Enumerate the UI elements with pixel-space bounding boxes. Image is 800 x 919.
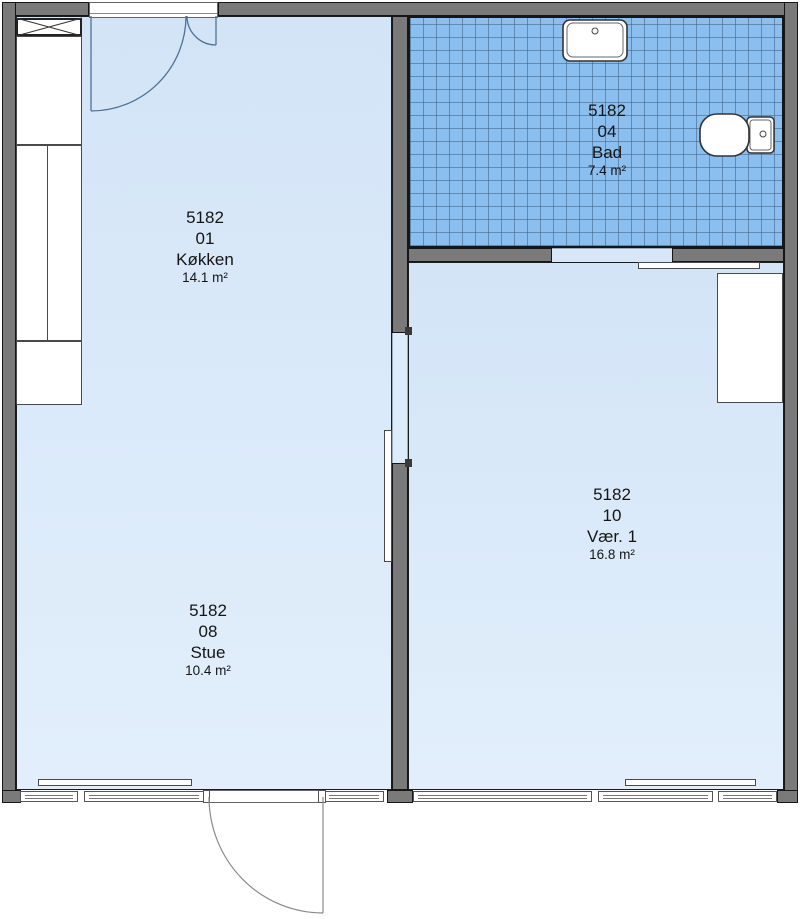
sliding-door-leaf-divider — [384, 430, 392, 562]
room-area: 7.4 m² — [588, 163, 626, 179]
entry-door-jamb-left — [203, 790, 210, 803]
room-area: 10.4 m² — [185, 663, 231, 679]
kitchen-crossbox-icon — [16, 18, 82, 36]
wall-bottom-center-cap — [387, 790, 413, 803]
wall-right — [784, 2, 798, 803]
wall-bad-bottom-left — [408, 248, 552, 262]
window-stue-2 — [84, 791, 204, 802]
wardrobe — [717, 273, 783, 403]
door-stop-upper — [405, 327, 412, 335]
divider-sliding-door-opening — [392, 333, 408, 463]
room-name: Stue — [185, 642, 231, 663]
room-number: 04 — [588, 121, 626, 142]
wall-bottom-corner-right — [777, 790, 798, 803]
room-code: 5182 — [587, 484, 637, 505]
room-code: 5182 — [588, 100, 626, 121]
entry-door-opening — [208, 790, 324, 803]
wall-bottom-corner-left — [2, 790, 21, 803]
bad-sliding-door-opening — [552, 248, 672, 262]
room-code: 5182 — [185, 600, 231, 621]
room-name: Vær. 1 — [587, 526, 637, 547]
window-vaer1-1 — [413, 791, 592, 802]
kitchen-counter-top — [16, 36, 82, 145]
window-vaer1-2 — [598, 791, 713, 802]
wall-top-main — [218, 2, 798, 16]
room-label-vaer1: 5182 10 Vær. 1 16.8 m² — [587, 484, 637, 563]
room-area: 14.1 m² — [176, 270, 234, 286]
kitchen-counter-bottom — [16, 341, 82, 405]
sliding-door-leaf-bad — [638, 262, 760, 269]
wall-left — [2, 2, 16, 803]
room-code: 5182 — [176, 207, 234, 228]
wall-bad-bottom-right — [672, 248, 784, 262]
window-stue-1 — [20, 791, 78, 802]
window-vaer1-3 — [718, 791, 777, 802]
room-name: Bad — [588, 142, 626, 163]
radiator-stue — [38, 779, 192, 786]
room-number: 01 — [176, 228, 234, 249]
window-stue-3 — [324, 791, 384, 802]
room-label-koekken: 5182 01 Køkken 14.1 m² — [176, 207, 234, 286]
room-number: 08 — [185, 621, 231, 642]
room-number: 10 — [587, 505, 637, 526]
entry-door-jamb-right — [318, 790, 326, 803]
room-area: 16.8 m² — [587, 547, 637, 563]
koekken-door-opening — [89, 2, 218, 18]
entry-door-icon — [209, 797, 323, 913]
room-label-stue: 5182 08 Stue 10.4 m² — [185, 600, 231, 679]
room-name: Køkken — [176, 249, 234, 270]
wall-divider-upper — [392, 16, 408, 333]
floor-plan: 5182 01 Køkken 14.1 m² 5182 04 Bad 7.4 m… — [0, 0, 800, 919]
wall-divider-lower — [392, 463, 408, 790]
door-stop-lower — [405, 459, 412, 467]
kitchen-counter-right-column — [47, 145, 82, 341]
radiator-vaer1 — [625, 779, 756, 786]
kitchen-counter-left-column — [16, 145, 48, 341]
room-label-bad: 5182 04 Bad 7.4 m² — [588, 100, 626, 179]
